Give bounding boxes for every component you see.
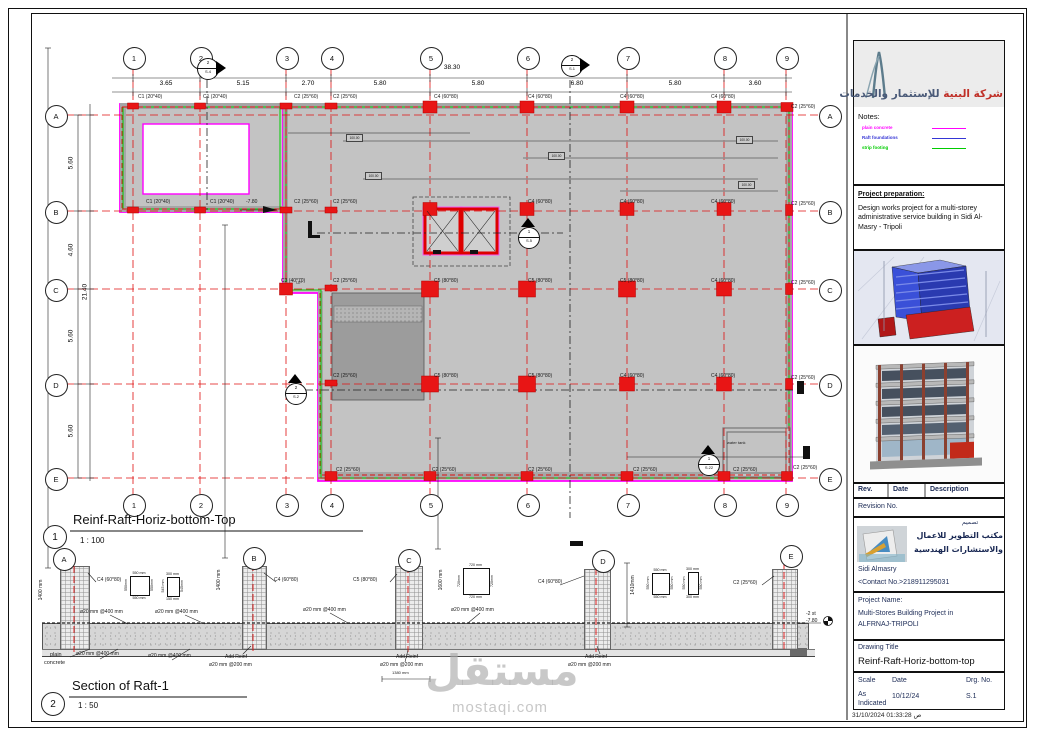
project-name-label: Project Name:	[858, 597, 902, 604]
plan-view-scale: 1 : 100	[80, 536, 104, 545]
revision-table	[853, 483, 1005, 498]
drawing-title-label: Drawing Title	[858, 644, 898, 651]
building-render-1	[854, 251, 1004, 344]
building-render-2	[854, 346, 1004, 482]
project-preparation-text: Design works project for a multi-storey …	[858, 204, 1000, 232]
description-header: Description	[930, 486, 969, 493]
notes-label: Notes:	[858, 112, 880, 121]
legend-label: plain concrete	[862, 126, 893, 131]
section-view-title: Section of Raft-1	[72, 678, 169, 693]
company-name: شركة البنية للإستثمار والخدمات	[839, 88, 1003, 100]
project-name-line2: ALFRNAJ-TRIPOLI	[858, 621, 919, 628]
view-number-1: 1	[43, 525, 67, 549]
drawing-title-value: Reinf-Raft-Horiz-bottom-top	[858, 656, 975, 667]
office-name-line1: مكتب التطوير للاعمال	[916, 531, 1003, 540]
drg-no-label: Drg. No.	[966, 677, 992, 684]
designer-logo	[857, 526, 907, 562]
designer-contact: <Contact No.>218911295031	[858, 579, 949, 586]
date-value: 10/12/24	[892, 693, 919, 700]
section-view-scale: 1 : 50	[78, 701, 98, 710]
scale-value-1: As	[858, 691, 866, 698]
project-name-line1: Multi-Stores Building Project in	[858, 610, 953, 617]
plan-view-title: Reinf-Raft-Horiz-bottom-Top	[73, 512, 236, 527]
date-label2: Date	[892, 677, 907, 684]
rev-header: Rev.	[858, 486, 872, 493]
plot-timestamp: 31/10/2024 01:33:28 ص	[852, 711, 921, 719]
project-preparation-heading: Project preparation:	[858, 191, 925, 198]
scale-value-2: Indicated	[858, 700, 886, 707]
drg-no-value: S.1	[966, 693, 977, 700]
revision-no-label: Revision No.	[858, 503, 898, 510]
legend-label: Raft foundations	[862, 136, 898, 141]
cad-sheet: 112233445566778899AABBCCDDEEABCDE38.303.…	[0, 0, 1037, 738]
legend-label: strip footing	[862, 146, 888, 151]
view-number-2: 2	[41, 692, 65, 716]
date-header: Date	[893, 486, 908, 493]
office-name-line2: والاستشارات الهندسية	[914, 545, 1003, 554]
designer-name: Sidi Almasry	[858, 566, 897, 573]
legend-line	[932, 128, 966, 129]
scale-label: Scale	[858, 677, 876, 684]
legend-line	[932, 138, 966, 139]
legend-line	[932, 148, 966, 149]
design-label: تصميم	[962, 519, 978, 526]
